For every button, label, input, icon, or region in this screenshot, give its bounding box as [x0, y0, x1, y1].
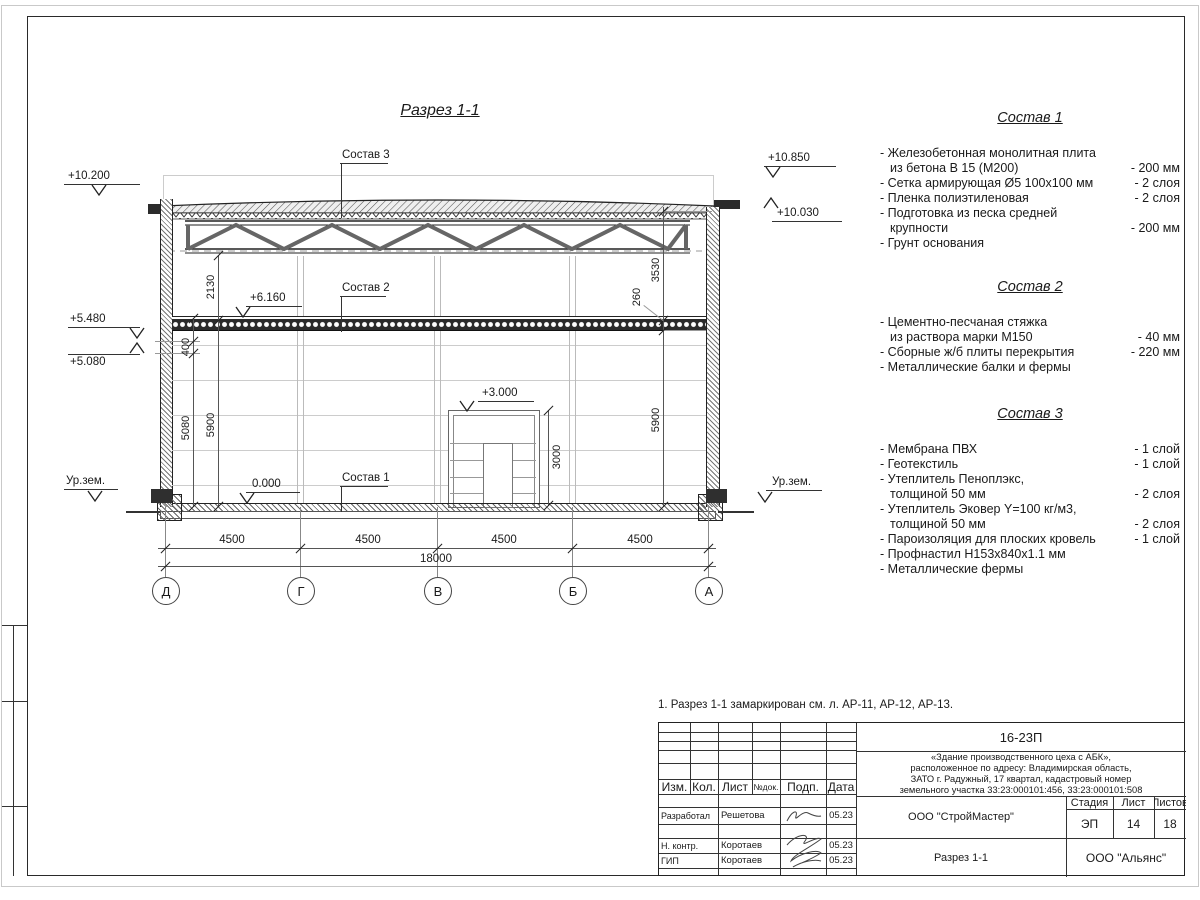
tb-col-kol: Кол.	[690, 779, 718, 794]
dim-total: 18000	[406, 553, 466, 565]
signature-icon	[784, 807, 824, 825]
drawing-sheet: Разрез 1-1	[0, 0, 1200, 900]
layer-name: - Металлические фермы	[880, 562, 1023, 577]
elevation-left-lower: +5.080	[70, 356, 106, 368]
tb-col-ndok: №док.	[752, 779, 780, 794]
tb-date-gip: 05.23	[826, 853, 856, 868]
layer-name: - Сетка армирующая Ø5 100х100 мм	[880, 176, 1093, 191]
floor-underlayment	[160, 511, 716, 519]
dim-400: 400	[180, 322, 192, 372]
leader-line	[340, 163, 388, 164]
leader-line	[341, 163, 342, 218]
tb-date-developer: 05.23	[826, 807, 856, 824]
tb-sheets-label: Листов	[1154, 796, 1186, 809]
tb-col-list: Лист	[718, 779, 752, 794]
layer-name: - Цементно-песчаная стяжка из раствора м…	[880, 315, 1047, 345]
tb-sheet-value: 14	[1113, 809, 1154, 838]
tb-name-gip: Коротаев	[721, 853, 780, 868]
elevation-arrow-down-icon	[90, 184, 108, 197]
layer-name: - Металлические балки и фермы	[880, 360, 1071, 375]
tb-drawing-name: Разрез 1-1	[856, 838, 1066, 877]
ground-arrow-down-icon	[86, 490, 104, 503]
tb-sheet-label: Лист	[1113, 796, 1154, 809]
tb-col-podp: Подп.	[780, 779, 826, 794]
tb-sheets-value: 18	[1154, 809, 1186, 838]
elevation-arrow-down-icon	[128, 327, 146, 340]
leader-sostav1: Состав 1	[342, 472, 390, 484]
layer-name: - Геотекстиль	[880, 457, 960, 472]
layer-name: - Железобетонная монолитная плита из бет…	[880, 146, 1096, 176]
tb-doc-number: 16-23П	[856, 723, 1186, 751]
layer-name: - Пленка полиэтиленовая	[880, 191, 1029, 206]
floor-slab-6160-hollowcore	[172, 319, 706, 331]
axis-bubble-a: А	[695, 577, 723, 605]
layer-name: - Грунт основания	[880, 236, 984, 251]
layer-value: - 1 слой	[1134, 442, 1180, 457]
elevation-left-upper: +5.480	[70, 313, 106, 325]
dim-3000: 3000	[551, 432, 563, 482]
elevation-floor2: +6.160	[250, 292, 286, 304]
tb-stage-value: ЭП	[1066, 809, 1113, 838]
dim-2130: 2130	[205, 262, 217, 312]
layer-value: - 2 слоя	[1135, 191, 1180, 206]
dim-5900-right: 5900	[650, 395, 662, 445]
dim-span-1: 4500	[202, 534, 262, 546]
mezzanine-room	[448, 410, 540, 508]
right-wall	[706, 207, 720, 507]
layer-value: - 2 слоя	[1135, 517, 1180, 532]
ground-line-left	[126, 511, 160, 513]
dim-span-4: 4500	[610, 534, 670, 546]
layer-name: - Профнастил Н153х840х1.1 мм	[880, 547, 1066, 562]
layer-value: - 1 слой	[1134, 457, 1180, 472]
ground-line-right	[718, 511, 754, 513]
leader-sostav2: Состав 2	[342, 282, 390, 294]
layer-value: - 2 слоя	[1135, 487, 1180, 502]
leader-line	[341, 296, 342, 332]
elevation-left-top: +10.200	[68, 170, 110, 182]
ground-arrow-down-icon	[756, 491, 774, 504]
elevation-arrow-down-icon	[458, 400, 476, 413]
ground-level-right: Ур.зем.	[772, 476, 811, 488]
tb-name-ncontrol: Коротаев	[721, 838, 780, 853]
elevation-zero: 0.000	[252, 478, 281, 490]
composition-3: Состав 3 - Мембрана ПВХ- 1 слой - Геотек…	[880, 406, 1180, 577]
tb-stage-label: Стадия	[1066, 796, 1113, 809]
layer-value: - 220 мм	[1131, 345, 1180, 360]
dim-5080: 5080	[180, 403, 192, 453]
composition-2-title: Состав 2	[880, 279, 1180, 295]
tb-name-developer: Решетова	[721, 807, 780, 824]
tb-col-izm: Изм.	[659, 779, 690, 794]
dim-260: 260	[631, 272, 643, 322]
tb-role-ncontrol: Н. контр.	[661, 838, 718, 853]
plinth-right	[706, 489, 727, 503]
layer-value: - 200 мм	[1131, 161, 1180, 176]
layer-name: - Мембрана ПВХ	[880, 442, 977, 457]
elevation-arrow-down-icon	[234, 306, 252, 319]
axis-bubble-v: В	[424, 577, 452, 605]
tb-role-developer: Разработал	[661, 807, 718, 824]
tb-col-data: Дата	[826, 779, 856, 794]
elevation-right-parapet: +10.030	[777, 207, 819, 219]
plinth-left	[151, 489, 172, 503]
section-title: Разрез 1-1	[355, 102, 525, 120]
layer-name: - Утеплитель Пеноплэкс, толщиной 50 мм	[880, 472, 1024, 502]
axis-bubble-g: Г	[287, 577, 315, 605]
layer-name: - Сборные ж/б плиты перекрытия	[880, 345, 1074, 360]
tb-org-row: ООО "СтройМастер"	[856, 796, 1066, 838]
tb-object-description: «Здание производственного цеха с АБК», р…	[858, 751, 1184, 796]
layer-value: - 200 мм	[1131, 221, 1180, 236]
ground-level-left: Ур.зем.	[66, 475, 105, 487]
dim-span-2: 4500	[338, 534, 398, 546]
composition-3-title: Состав 3	[880, 406, 1180, 422]
layer-name: - Пароизоляция для плоских кровель	[880, 532, 1096, 547]
elevation-arrow-down-icon	[764, 166, 782, 179]
dim-span-3: 4500	[474, 534, 534, 546]
layer-value: - 1 слой	[1134, 532, 1180, 547]
dim-5900-left: 5900	[205, 400, 217, 450]
layer-value: - 40 мм	[1138, 330, 1180, 345]
door-opening	[483, 443, 513, 508]
leader-line	[340, 296, 386, 297]
composition-1: Состав 1 - Железобетонная монолитная пли…	[880, 110, 1180, 251]
tb-company: ООО "Альянс"	[1066, 838, 1186, 877]
elevation-mezzanine: +3.000	[482, 387, 518, 399]
elevation-arrow-down-icon	[238, 492, 256, 505]
leader-line	[340, 486, 388, 487]
axis-bubble-b: Б	[559, 577, 587, 605]
title-block: Изм. Кол. Лист №док. Подп. Дата Разработ…	[658, 722, 1185, 876]
composition-1-title: Состав 1	[880, 110, 1180, 126]
dim-3530: 3530	[650, 245, 662, 295]
layer-name: - Утеплитель Эковер Y=100 кг/м3, толщино…	[880, 502, 1076, 532]
leader-sostav3: Состав 3	[342, 149, 390, 161]
layer-name: - Подготовка из песка средней крупности	[880, 206, 1057, 236]
layer-value: - 2 слоя	[1135, 176, 1180, 191]
tb-date-ncontrol: 05.23	[826, 838, 856, 853]
leader-line	[341, 486, 342, 512]
elevation-right-top: +10.850	[768, 152, 810, 164]
tb-role-gip: ГИП	[661, 853, 718, 868]
composition-2: Состав 2 - Цементно-песчаная стяжка из р…	[880, 279, 1180, 375]
axis-bubble-d: Д	[152, 577, 180, 605]
signature-icon	[781, 831, 827, 871]
sheet-note: 1. Разрез 1-1 замаркирован см. л. АР-11,…	[658, 699, 953, 711]
elevation-arrow-up-icon	[128, 341, 146, 354]
